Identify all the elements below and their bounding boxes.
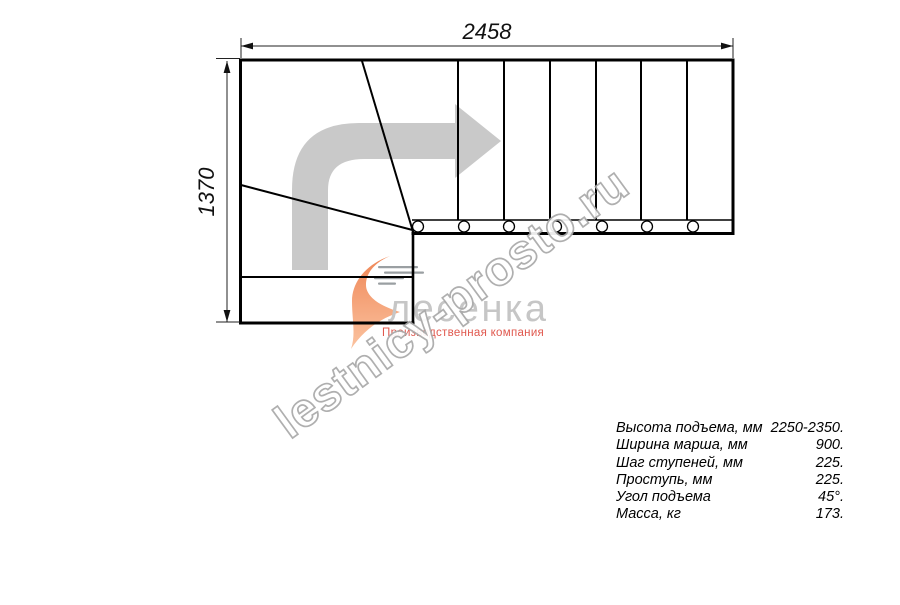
- dimension-height: 1370: [194, 59, 240, 323]
- dimension-width-label: 2458: [462, 19, 513, 44]
- spec-value: 2250-2350.: [771, 420, 844, 437]
- spec-label: Ширина марша, мм: [616, 437, 748, 454]
- spec-table: Высота подъема, мм 2250-2350. Ширина мар…: [616, 420, 844, 524]
- spec-label: Масса, кг: [616, 506, 681, 523]
- spec-row-angle: Угол подъема 45°.: [616, 489, 844, 506]
- spec-row-march-width: Ширина марша, мм 900.: [616, 437, 844, 454]
- spec-label: Высота подъема, мм: [616, 420, 763, 437]
- dim-arrow-down-icon: [224, 310, 231, 322]
- spec-row-tread: Проступь, мм 225.: [616, 472, 844, 489]
- spec-label: Проступь, мм: [616, 472, 712, 489]
- dimension-height-label: 1370: [194, 167, 219, 217]
- spec-row-height: Высота подъема, мм 2250-2350.: [616, 420, 844, 437]
- spec-value: 900.: [816, 437, 844, 454]
- dimension-width: 2458: [241, 19, 733, 58]
- spec-label: Шаг ступеней, мм: [616, 455, 743, 472]
- spec-row-step-pitch: Шаг ступеней, мм 225.: [616, 455, 844, 472]
- spec-value: 225.: [816, 472, 844, 489]
- spec-row-mass: Масса, кг 173.: [616, 506, 844, 523]
- dim-arrow-up-icon: [224, 61, 231, 73]
- spec-label: Угол подъема: [616, 489, 711, 506]
- dim-arrow-left-icon: [241, 43, 253, 50]
- spec-value: 173.: [816, 506, 844, 523]
- staircase-drawing-page: лесенка Производственная компания: [0, 0, 900, 600]
- dim-arrow-right-icon: [721, 43, 733, 50]
- spec-value: 225.: [816, 455, 844, 472]
- spec-value: 45°.: [818, 489, 844, 506]
- direction-arrow-icon: [292, 104, 501, 270]
